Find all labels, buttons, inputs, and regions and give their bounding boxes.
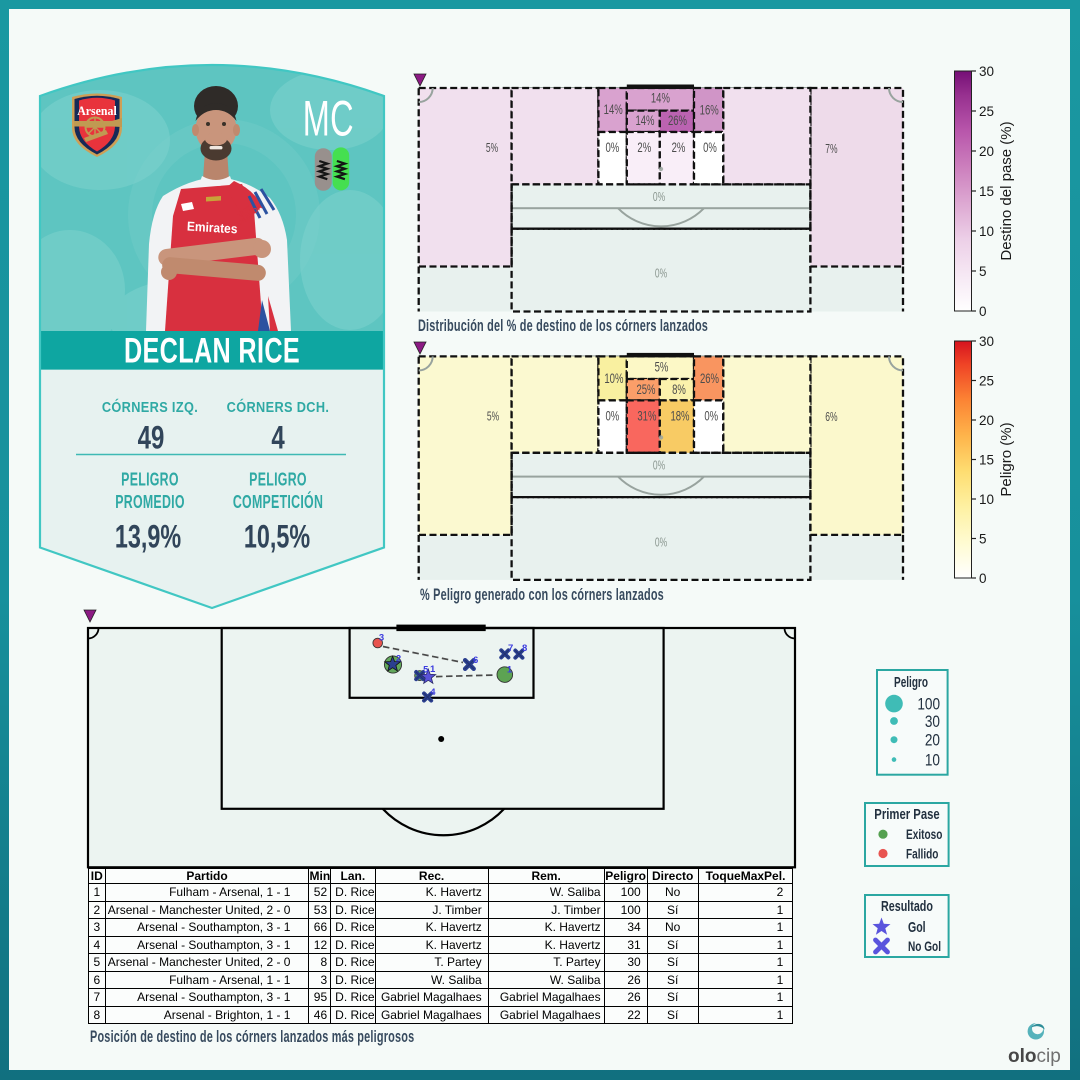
svg-text:7%: 7% xyxy=(825,142,838,156)
svg-text:0%: 0% xyxy=(606,408,620,424)
svg-text:PELIGRO: PELIGRO xyxy=(121,470,179,490)
svg-text:14%: 14% xyxy=(651,90,670,106)
svg-text:100: 100 xyxy=(917,695,940,714)
svg-text:Gol: Gol xyxy=(908,919,926,935)
svg-text:4: 4 xyxy=(271,419,285,455)
svg-text:10: 10 xyxy=(979,224,994,239)
svg-text:0%: 0% xyxy=(606,139,620,155)
svg-text:49: 49 xyxy=(138,419,165,455)
svg-text:13,9%: 13,9% xyxy=(115,519,181,554)
svg-text:6: 6 xyxy=(473,655,478,666)
svg-text:5%: 5% xyxy=(655,358,669,374)
svg-text:30: 30 xyxy=(979,334,994,349)
svg-text:Primer Pase: Primer Pase xyxy=(874,806,939,823)
svg-text:16%: 16% xyxy=(700,101,719,117)
svg-text:15: 15 xyxy=(979,184,994,199)
svg-text:4: 4 xyxy=(430,687,436,698)
svg-text:5: 5 xyxy=(979,264,987,279)
svg-text:Emirates: Emirates xyxy=(187,219,238,236)
svg-text:5: 5 xyxy=(979,531,987,546)
svg-text:6%: 6% xyxy=(825,411,838,425)
svg-text:25%: 25% xyxy=(636,381,655,397)
svg-text:CÓRNERS IZQ.: CÓRNERS IZQ. xyxy=(102,399,198,415)
svg-text:25: 25 xyxy=(979,104,994,119)
svg-text:CÓRNERS DCH.: CÓRNERS DCH. xyxy=(227,399,330,415)
svg-text:DECLAN RICE: DECLAN RICE xyxy=(124,332,300,371)
svg-text:Fallido: Fallido xyxy=(906,846,938,862)
svg-text:5%: 5% xyxy=(486,141,499,155)
svg-text:2%: 2% xyxy=(637,139,651,155)
svg-text:0%: 0% xyxy=(655,536,668,550)
svg-text:31%: 31% xyxy=(637,408,656,424)
svg-text:8: 8 xyxy=(522,643,527,654)
svg-text:10: 10 xyxy=(925,751,940,770)
svg-text:5: 5 xyxy=(423,665,429,676)
svg-text:Exitoso: Exitoso xyxy=(906,826,942,842)
svg-text:COMPETICIÓN: COMPETICIÓN xyxy=(233,490,323,512)
svg-text:2: 2 xyxy=(396,654,401,665)
svg-text:3: 3 xyxy=(379,633,384,644)
svg-text:1: 1 xyxy=(507,665,513,676)
svg-text:10,5%: 10,5% xyxy=(244,519,310,554)
svg-text:2%: 2% xyxy=(672,139,686,155)
svg-text:0: 0 xyxy=(979,571,987,586)
svg-text:Arsenal: Arsenal xyxy=(77,104,117,118)
svg-text:15: 15 xyxy=(979,452,994,467)
svg-text:0%: 0% xyxy=(704,408,718,424)
svg-text:20: 20 xyxy=(925,731,940,750)
svg-text:Peligro (%): Peligro (%) xyxy=(998,422,1015,496)
svg-text:Destino del pase (%): Destino del pase (%) xyxy=(998,121,1015,260)
svg-text:0%: 0% xyxy=(655,267,668,281)
svg-text:10: 10 xyxy=(979,492,994,507)
svg-text:PROMEDIO: PROMEDIO xyxy=(115,493,185,513)
svg-text:0%: 0% xyxy=(703,139,717,155)
svg-text:26%: 26% xyxy=(700,370,719,386)
svg-text:Resultado: Resultado xyxy=(881,897,933,914)
svg-text:10%: 10% xyxy=(604,370,623,386)
svg-text:5%: 5% xyxy=(487,410,500,424)
svg-text:No Gol: No Gol xyxy=(908,938,941,954)
svg-text:14%: 14% xyxy=(604,101,623,117)
svg-text:20: 20 xyxy=(979,413,994,428)
svg-text:7: 7 xyxy=(508,643,513,654)
svg-text:Peligro: Peligro xyxy=(894,674,928,690)
svg-text:20: 20 xyxy=(979,144,994,159)
svg-text:25: 25 xyxy=(979,373,994,388)
svg-text:0%: 0% xyxy=(653,190,666,204)
svg-text:olocip: olocip xyxy=(1008,1046,1061,1067)
svg-text:0%: 0% xyxy=(653,459,666,473)
svg-text:30: 30 xyxy=(925,713,940,732)
svg-text:14%: 14% xyxy=(635,112,654,128)
svg-text:18%: 18% xyxy=(670,408,689,424)
svg-text:PELIGRO: PELIGRO xyxy=(249,470,307,490)
svg-text:26%: 26% xyxy=(668,112,687,128)
svg-text:1: 1 xyxy=(430,664,436,675)
svg-text:30: 30 xyxy=(979,64,994,79)
svg-text:MC: MC xyxy=(303,90,354,146)
svg-text:0: 0 xyxy=(979,304,987,319)
svg-text:8%: 8% xyxy=(672,381,686,397)
